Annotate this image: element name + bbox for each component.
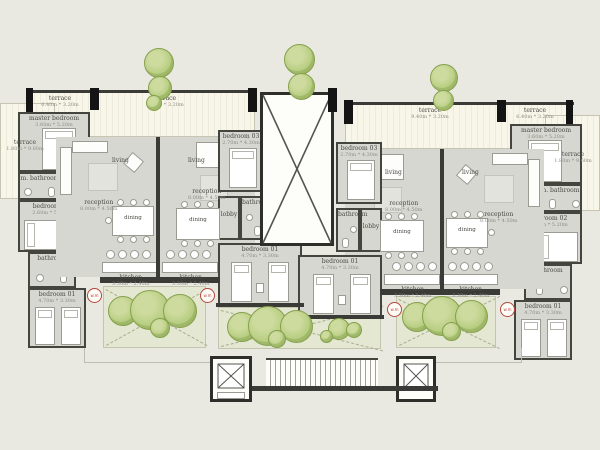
bed bbox=[268, 262, 289, 302]
wall-cap bbox=[248, 88, 257, 112]
terrace-label: terrace1.80m * 9.60m bbox=[0, 140, 50, 152]
tree-icon bbox=[346, 322, 362, 338]
site-line bbox=[521, 348, 522, 363]
stool bbox=[448, 262, 457, 271]
bed bbox=[521, 319, 541, 357]
tree-icon bbox=[433, 90, 454, 111]
kitchen-counter bbox=[162, 262, 218, 273]
stool bbox=[142, 250, 151, 259]
chair bbox=[411, 213, 418, 220]
nightstand bbox=[256, 283, 264, 293]
stool bbox=[404, 262, 413, 271]
stool bbox=[118, 250, 127, 259]
chair bbox=[385, 252, 392, 259]
room-bedroom-03: bedroom 03 2.70m * 4.30m bbox=[218, 130, 264, 192]
chair bbox=[488, 229, 495, 236]
dining-table: dining bbox=[112, 206, 154, 236]
room-label-reception: reception8.00m * 4.50m bbox=[480, 212, 517, 224]
room-bedroom-01: bedroom 01 4.70m * 3.30m bbox=[298, 255, 382, 317]
chair bbox=[398, 252, 405, 259]
stairs bbox=[266, 358, 378, 386]
chair bbox=[385, 213, 392, 220]
site-line bbox=[84, 348, 85, 363]
kitchen-counter bbox=[442, 274, 498, 285]
kitchen-counter bbox=[102, 262, 158, 273]
chair bbox=[130, 199, 137, 206]
tree-icon bbox=[150, 318, 170, 338]
floor-plan: terrace6.40m * 3.20m terrace9.40m * 3.20… bbox=[0, 0, 600, 450]
tree-icon bbox=[442, 322, 461, 341]
sink-icon bbox=[246, 214, 253, 221]
room-label-reception: reception8.00m * 4.50m bbox=[188, 189, 225, 201]
sofa bbox=[72, 141, 108, 153]
room-label-dining: dining bbox=[381, 229, 423, 235]
unit-badge: w.m bbox=[500, 302, 515, 317]
sofa bbox=[492, 153, 528, 165]
chair bbox=[477, 248, 484, 255]
stool bbox=[428, 262, 437, 271]
tree-icon bbox=[284, 44, 315, 75]
tree-icon bbox=[146, 95, 162, 111]
sofa bbox=[60, 147, 72, 195]
room-label-dining: dining bbox=[177, 217, 219, 223]
chair bbox=[464, 248, 471, 255]
bed bbox=[231, 262, 252, 302]
stool bbox=[106, 250, 115, 259]
room-lobby: lobby bbox=[218, 196, 240, 240]
stool bbox=[472, 262, 481, 271]
room-label-living: living bbox=[385, 170, 402, 177]
unit-badge: w.m bbox=[200, 288, 215, 303]
tree-icon bbox=[288, 73, 315, 100]
chair bbox=[194, 240, 201, 247]
room-label-reception: reception8.00m * 4.50m bbox=[80, 200, 117, 212]
chair bbox=[207, 201, 214, 208]
kitchen-counter bbox=[384, 274, 440, 285]
dining-table: dining bbox=[176, 208, 220, 240]
chair bbox=[411, 252, 418, 259]
stool bbox=[460, 262, 469, 271]
chair bbox=[464, 211, 471, 218]
rug bbox=[484, 175, 514, 203]
cross-brace-icon bbox=[260, 92, 334, 246]
tree-icon bbox=[268, 330, 286, 348]
bed bbox=[35, 307, 55, 345]
stair-wall bbox=[252, 386, 438, 391]
bed bbox=[313, 274, 334, 314]
bed bbox=[350, 274, 371, 314]
sink-icon bbox=[24, 188, 32, 196]
bed bbox=[547, 319, 567, 357]
unit-badge: w.m bbox=[387, 302, 402, 317]
room-m-bathroom: m. bathroom bbox=[538, 184, 582, 212]
site-line bbox=[436, 362, 522, 363]
sink-icon bbox=[572, 200, 580, 208]
stool bbox=[416, 262, 425, 271]
room-label-dining: dining bbox=[113, 215, 153, 221]
wall-cap bbox=[344, 100, 353, 124]
chair bbox=[181, 201, 188, 208]
sink-icon bbox=[560, 286, 568, 294]
room-label-kitchen: kitchen3.30m * 2.40m bbox=[394, 287, 431, 299]
chair bbox=[398, 213, 405, 220]
bed bbox=[61, 307, 81, 345]
terrace-label: terrace9.40m * 3.20m bbox=[395, 108, 465, 120]
room-bedroom-01: bedroom 01 4.70m * 3.30m bbox=[218, 243, 302, 305]
chair bbox=[181, 240, 188, 247]
bed bbox=[229, 148, 257, 188]
wall-cap bbox=[566, 100, 573, 124]
sink-icon bbox=[36, 274, 44, 282]
chair bbox=[451, 211, 458, 218]
chair bbox=[143, 236, 150, 243]
terrace-label: terrace1.80m * 9.60m bbox=[548, 152, 598, 164]
room-label-living: living bbox=[112, 158, 129, 165]
elevator-door bbox=[217, 392, 245, 399]
elevator-x-icon bbox=[217, 363, 245, 389]
tree-icon bbox=[320, 330, 333, 343]
party-wall bbox=[156, 137, 160, 283]
room-label-kitchen: kitchen3.30m * 2.40m bbox=[172, 275, 209, 287]
chair bbox=[143, 199, 150, 206]
stool bbox=[130, 250, 139, 259]
room-bedroom-01: bedroom 01 4.70m * 3.30m bbox=[514, 300, 572, 360]
bed bbox=[538, 232, 578, 262]
tree-icon bbox=[144, 48, 174, 78]
chair bbox=[117, 199, 124, 206]
bed bbox=[347, 160, 375, 200]
stool bbox=[166, 250, 175, 259]
room-label-dining: dining bbox=[447, 227, 487, 233]
toilet-icon bbox=[549, 199, 556, 209]
room-label-living: living bbox=[462, 170, 479, 177]
sofa bbox=[528, 159, 540, 207]
site-line bbox=[84, 362, 210, 363]
wall-cap bbox=[90, 88, 99, 110]
wall bbox=[345, 102, 574, 105]
chair bbox=[117, 236, 124, 243]
unit-badge: w.m bbox=[87, 288, 102, 303]
wall bbox=[28, 90, 257, 93]
stool bbox=[202, 250, 211, 259]
toilet-icon bbox=[342, 238, 349, 248]
chair bbox=[194, 201, 201, 208]
party-wall bbox=[440, 149, 444, 295]
stool bbox=[178, 250, 187, 259]
chair bbox=[105, 217, 112, 224]
room-bathroom: bathroom bbox=[336, 208, 360, 252]
terrace-label: terrace6.40m * 3.20m bbox=[30, 96, 90, 108]
rug bbox=[88, 163, 118, 191]
tree-icon bbox=[430, 64, 458, 92]
chair bbox=[130, 236, 137, 243]
room-label-kitchen: kitchen3.30m * 2.40m bbox=[112, 275, 149, 287]
sink-icon bbox=[350, 226, 357, 233]
stool bbox=[484, 262, 493, 271]
stool bbox=[190, 250, 199, 259]
room-label-living: living bbox=[188, 158, 205, 165]
chair bbox=[207, 240, 214, 247]
nightstand bbox=[338, 295, 346, 305]
toilet-icon bbox=[48, 187, 55, 197]
stool bbox=[392, 262, 401, 271]
room-label-reception: reception8.00m * 4.50m bbox=[385, 201, 422, 213]
room-bedroom-03: bedroom 03 2.70m * 4.30m bbox=[336, 142, 382, 204]
wall-cap bbox=[328, 88, 337, 112]
room-bedroom-01: bedroom 01 4.70m * 3.30m bbox=[28, 288, 86, 348]
room-label-kitchen: kitchen3.30m * 2.40m bbox=[452, 287, 489, 299]
terrace-label: terrace6.40m * 3.20m bbox=[505, 108, 565, 120]
chair bbox=[451, 248, 458, 255]
dining-table: dining bbox=[380, 220, 424, 252]
